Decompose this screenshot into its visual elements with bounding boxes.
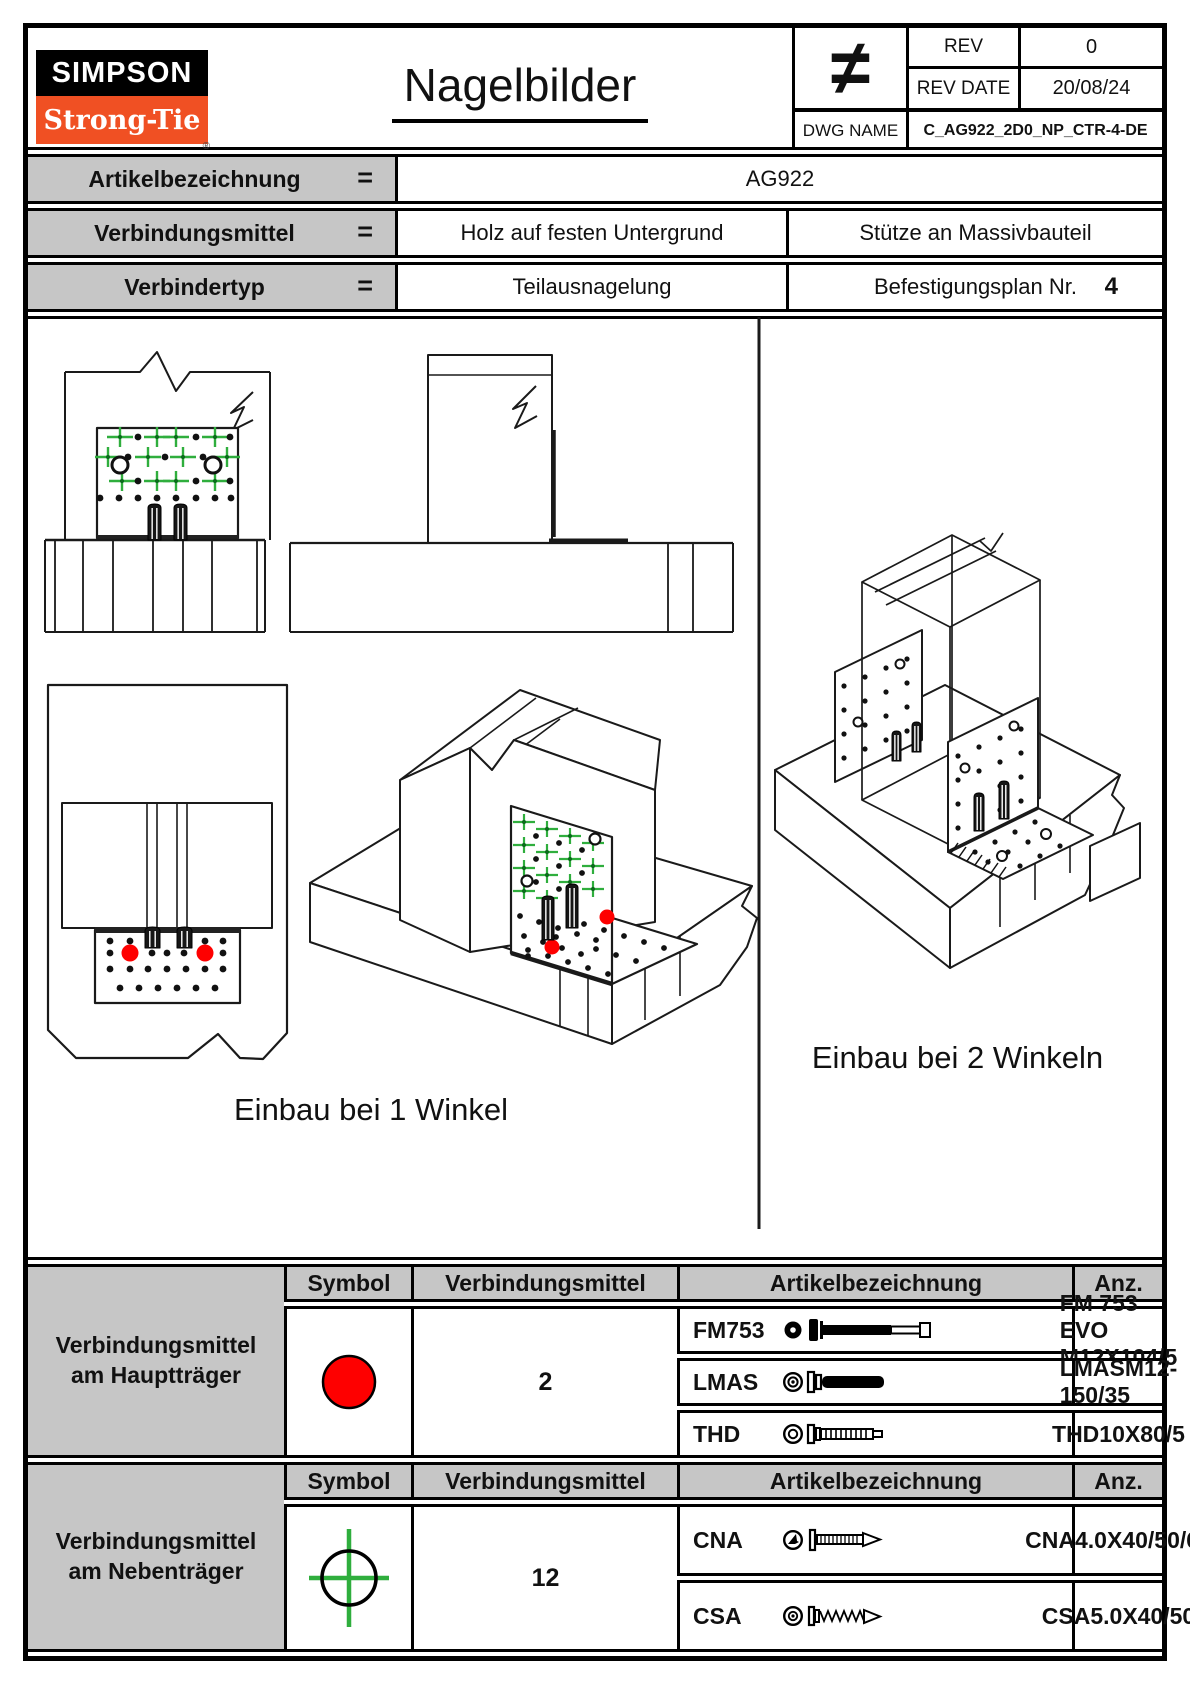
fastener-table-main-beam: Verbindungsmittel am Hauptträger Symbol … — [28, 1264, 1162, 1458]
not-equal-icon: ≠ — [795, 28, 906, 112]
fastener-value-left: Holz auf festen Untergrund — [398, 211, 789, 255]
article-value: LMASM12-150/35 — [1072, 1358, 1162, 1406]
csa-screw-icon — [783, 1599, 941, 1633]
article-value: CSA5.0X40/50 — [1072, 1580, 1162, 1652]
red-circle-icon — [316, 1349, 382, 1415]
equals-sign: = — [357, 216, 373, 247]
equals-sign: = — [357, 162, 373, 193]
fastener-label-cell: Verbindungsmittel = — [28, 211, 398, 255]
article-value: THD10X80/5 — [1072, 1410, 1162, 1458]
drawing-sheet: SIMPSON Strong-Tie ® Nagelbilder ≠ DWG N… — [0, 0, 1190, 1682]
article-header: Artikelbezeichnung — [677, 1264, 1072, 1302]
symbol-header: Symbol — [284, 1264, 411, 1302]
plan-number: 4 — [1105, 273, 1118, 301]
fastener-row: CNA — [677, 1504, 1072, 1576]
fastener-header: Verbindungsmittel — [411, 1264, 677, 1302]
fastener-value-right: Stütze an Massivbauteil — [789, 211, 1162, 255]
symbol-header: Symbol — [284, 1462, 411, 1500]
article-header: Artikelbezeichnung — [677, 1462, 1072, 1500]
cna-nail-icon — [783, 1523, 941, 1557]
rev-label: REV — [909, 28, 1021, 66]
qty-header: Anz. — [1072, 1462, 1162, 1500]
rev-row: REV 0 — [909, 28, 1162, 69]
secondary-beam-qty: 12 — [411, 1504, 677, 1652]
revision-block: REV 0 REV DATE 20/08/24 C_AG922_2D0_NP_C… — [909, 28, 1162, 150]
info-row-fastener: Verbindungsmittel = Holz auf festen Unte… — [28, 208, 1162, 258]
equals-sign: = — [357, 270, 373, 301]
secondary-beam-label: Verbindungsmittel am Nebenträger — [28, 1462, 284, 1652]
fastener-row: LMAS — [677, 1358, 1072, 1406]
main-beam-label: Verbindungsmittel am Hauptträger — [28, 1264, 284, 1458]
page-title: Nagelbilder — [178, 34, 862, 147]
fastening-plan-cell: Befestigungsplan Nr. 4 — [789, 265, 1162, 309]
rev-date-row: REV DATE 20/08/24 — [909, 69, 1162, 112]
title-block: SIMPSON Strong-Tie ® Nagelbilder ≠ DWG N… — [28, 28, 1162, 150]
article-value: FM 753 EVO M12X104/5 — [1072, 1306, 1162, 1354]
fastener-row: THD — [677, 1410, 1072, 1458]
fastener-table-secondary-beam: Verbindungsmittel am Nebenträger Symbol … — [28, 1462, 1162, 1652]
caption-two-brackets: Einbau bei 2 Winkeln — [775, 1040, 1140, 1076]
rev-date-label: REV DATE — [909, 69, 1021, 108]
caption-one-bracket: Einbau bei 1 Winkel — [196, 1092, 546, 1128]
info-row-article: Artikelbezeichnung = AG922 — [28, 154, 1162, 204]
fastener-row: FM753 — [677, 1306, 1072, 1354]
main-beam-symbol — [284, 1306, 411, 1458]
rev-value: 0 — [1021, 28, 1162, 66]
info-row-connector-type: Verbindertyp = Teilausnagelung Befestigu… — [28, 262, 1162, 312]
dwg-name-label: DWG NAME — [795, 112, 906, 150]
fastener-row: CSA — [677, 1580, 1072, 1652]
green-crosshair-icon — [295, 1524, 403, 1632]
lmas-anchor-icon — [783, 1365, 941, 1399]
thd-screw-icon — [783, 1417, 941, 1451]
fastener-header: Verbindungsmittel — [411, 1462, 677, 1500]
article-value: AG922 — [398, 157, 1162, 201]
article-label-cell: Artikelbezeichnung = — [28, 157, 398, 201]
sheet-frame: SIMPSON Strong-Tie ® Nagelbilder ≠ DWG N… — [23, 23, 1167, 1661]
fm753-bolt-icon — [783, 1313, 941, 1347]
connector-type-value: Teilausnagelung — [398, 265, 789, 309]
connector-type-label-cell: Verbindertyp = — [28, 265, 398, 309]
article-value: CNA4.0X40/50/60 — [1072, 1504, 1162, 1576]
secondary-beam-symbol — [284, 1504, 411, 1652]
main-beam-qty: 2 — [411, 1306, 677, 1458]
dwg-name-value: C_AG922_2D0_NP_CTR-4-DE — [909, 112, 1162, 150]
rev-date-value: 20/08/24 — [1021, 69, 1162, 108]
